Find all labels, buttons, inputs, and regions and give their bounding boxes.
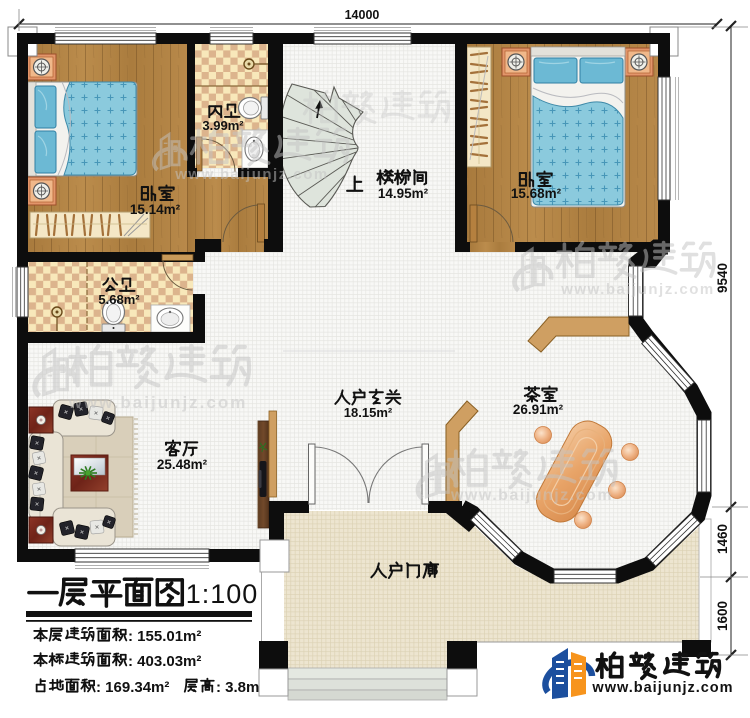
svg-text:1460: 1460 xyxy=(715,524,730,554)
svg-text:14.95m²: 14.95m² xyxy=(378,186,429,201)
svg-text:www.baijunjz.com: www.baijunjz.com xyxy=(174,166,328,183)
svg-text:1:100: 1:100 xyxy=(186,579,259,609)
svg-text:15.14m²: 15.14m² xyxy=(130,202,181,217)
svg-text:26.91m²: 26.91m² xyxy=(513,402,564,417)
svg-text:: 169.34m²: : 169.34m² xyxy=(96,679,169,696)
svg-text:14000: 14000 xyxy=(345,8,380,22)
svg-text:www.baijunjz.com: www.baijunjz.com xyxy=(591,680,733,696)
svg-text:18.15m²: 18.15m² xyxy=(344,405,393,420)
svg-text:: 3.8m: : 3.8m xyxy=(216,679,259,696)
svg-text:9540: 9540 xyxy=(715,263,730,293)
svg-text:www.baijunjz.com: www.baijunjz.com xyxy=(68,393,248,412)
svg-text:: 155.01m²: : 155.01m² xyxy=(128,628,201,645)
svg-text:www.baijunjz.com: www.baijunjz.com xyxy=(450,487,613,504)
svg-text:5.68m²: 5.68m² xyxy=(98,292,140,307)
svg-text:: 403.03m²: : 403.03m² xyxy=(128,653,201,670)
svg-text:www.baijunjz.com: www.baijunjz.com xyxy=(560,281,714,298)
svg-text:25.48m²: 25.48m² xyxy=(157,457,208,472)
svg-text:1600: 1600 xyxy=(715,601,730,631)
svg-text:15.68m²: 15.68m² xyxy=(511,186,562,201)
svg-text:3.99m²: 3.99m² xyxy=(202,118,244,133)
